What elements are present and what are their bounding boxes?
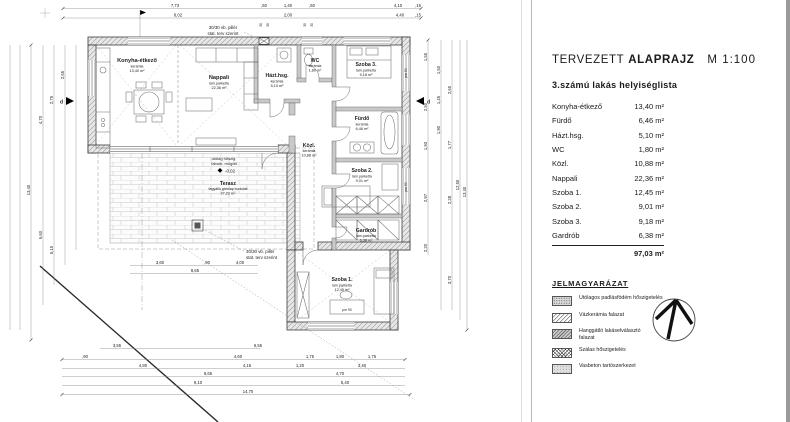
hatch-swatch-icon xyxy=(552,313,572,323)
room-name: Fürdő xyxy=(552,114,572,128)
svg-text:1,50: 1,50 xyxy=(436,65,441,74)
svg-text:30/30 vb. pillér: 30/30 vb. pillér xyxy=(209,25,238,30)
svg-text:,15: ,15 xyxy=(415,13,421,18)
svg-text:2,00: 2,00 xyxy=(284,13,293,18)
svg-text:lam.parketta: lam.parketta xyxy=(356,69,376,73)
svg-text:kerámia: kerámia xyxy=(131,65,144,69)
table-row: Nappali22,36 m² xyxy=(552,172,664,186)
svg-text:1,90: 1,90 xyxy=(436,125,441,134)
svg-text:kerámia: kerámia xyxy=(271,80,284,84)
hatch-swatch-icon xyxy=(552,296,572,306)
svg-text:3,70: 3,70 xyxy=(447,275,452,284)
legend-item: Vasbeton tartószerkezet xyxy=(552,363,682,374)
room-label-szoba3: Szoba 3. lam.parketta 9,18 m² xyxy=(355,62,377,77)
svg-text:30: 30 xyxy=(303,23,307,27)
svg-text:8,02: 8,02 xyxy=(174,13,183,18)
room-name: WC xyxy=(552,143,565,157)
svg-text:Fürdő: Fürdő xyxy=(355,116,370,122)
svg-text:9,10: 9,10 xyxy=(194,380,203,385)
svg-text:4,70: 4,70 xyxy=(38,115,43,124)
table-row: Szoba 1.12,45 m² xyxy=(552,186,664,200)
svg-text:6,55: 6,55 xyxy=(254,343,263,348)
hatch-swatch-icon xyxy=(552,348,572,358)
svg-text:30: 30 xyxy=(259,23,263,27)
svg-text:,60: ,60 xyxy=(309,3,315,8)
svg-text:2,75: 2,75 xyxy=(49,95,54,104)
svg-text:,90: ,90 xyxy=(204,260,210,265)
svg-text:1,80: 1,80 xyxy=(336,354,345,359)
sheet-frame-line xyxy=(521,0,522,422)
svg-text:6,60: 6,60 xyxy=(38,230,43,239)
legend-label: Hanggátló lakáselválasztó falazat xyxy=(579,328,641,341)
svg-text:30: 30 xyxy=(266,23,270,27)
svg-text:27,22 m²: 27,22 m² xyxy=(221,192,237,196)
legend-label: Vasbeton tartószerkezet xyxy=(579,363,636,370)
room-area: 1,80 m² xyxy=(639,143,664,157)
room-area: 6,38 m² xyxy=(639,229,664,243)
svg-text:stat. terv szerint: stat. terv szerint xyxy=(208,31,240,36)
title-main: ALAPRAJZ xyxy=(628,54,694,66)
room-label-gardrob: Gardrób lam.parketta 6,38 m² xyxy=(356,228,376,243)
table-row: WC1,80 m² xyxy=(552,143,664,157)
svg-text:kerámia: kerámia xyxy=(309,64,322,68)
svg-text:13,40: 13,40 xyxy=(26,184,31,195)
title-prefix: TERVEZETT xyxy=(552,54,624,66)
survey-cross xyxy=(40,8,50,18)
room-name: Konyha-étkező xyxy=(552,100,602,114)
sheet-edge xyxy=(786,0,790,422)
svg-text:1,80 m²: 1,80 m² xyxy=(309,69,323,73)
svg-text:2,65: 2,65 xyxy=(60,70,65,79)
svg-text:12,50: 12,50 xyxy=(455,179,460,190)
svg-text:kerámia: kerámia xyxy=(303,149,316,153)
table-row: Gardrób6,38 m² xyxy=(552,229,664,243)
room-label-nappali: Nappali lam.parketta 22,36 m² xyxy=(209,75,230,90)
section-marker-left: d xyxy=(60,97,74,106)
room-label-kozl: Közl. kerámia 10,88 m² xyxy=(302,143,318,158)
room-label-furdo: Fürdő kerámia 6,46 m² xyxy=(355,116,370,131)
svg-text:lam.parketta: lam.parketta xyxy=(352,175,372,179)
terrace-paving xyxy=(110,153,300,243)
title-scale: M 1:100 xyxy=(707,54,756,66)
svg-text:5,10 m²: 5,10 m² xyxy=(271,84,285,88)
info-panel: TERVEZETTALAPRAJZM 1:100 3.számú lakás h… xyxy=(532,0,786,422)
table-row: Szoba 2.9,01 m² xyxy=(552,200,664,214)
svg-text:6,46 m²: 6,46 m² xyxy=(356,127,370,131)
legend-label: Vázkerámia falazat xyxy=(579,312,624,319)
svg-text:9,01 m²: 9,01 m² xyxy=(356,179,370,183)
legend-label: Szálas hőszigetelés xyxy=(579,347,626,354)
svg-text:,15: ,15 xyxy=(415,3,421,8)
room-area: 5,10 m² xyxy=(639,129,664,143)
table-row: Szoba 3.9,18 m² xyxy=(552,215,664,229)
room-area: 9,01 m² xyxy=(639,200,664,214)
svg-text:14,70: 14,70 xyxy=(243,389,254,394)
svg-text:6,38 m²: 6,38 m² xyxy=(360,239,374,243)
flag-marker xyxy=(140,10,146,15)
svg-text:3,40: 3,40 xyxy=(358,363,367,368)
room-label-wc: WC kerámia 1,80 m² xyxy=(309,58,323,73)
svg-text:Szoba 3.: Szoba 3. xyxy=(355,62,377,68)
total-area: 97,03 m² xyxy=(552,245,664,258)
svg-text:,60: ,60 xyxy=(261,3,267,8)
svg-text:Szoba 2.: Szoba 2. xyxy=(351,168,373,174)
table-row: Közl.10,88 m² xyxy=(552,157,664,171)
room-name: Szoba 2. xyxy=(552,200,582,214)
svg-text:4,80: 4,80 xyxy=(139,363,148,368)
svg-text:13,40: 13,40 xyxy=(462,186,467,197)
svg-text:2,97: 2,97 xyxy=(423,193,428,202)
svg-text:1,75: 1,75 xyxy=(368,354,377,359)
svg-text:lam.parketta: lam.parketta xyxy=(209,82,229,86)
svg-text:1,77: 1,77 xyxy=(447,140,452,149)
svg-text:5,15: 5,15 xyxy=(49,245,54,254)
svg-text:4,60: 4,60 xyxy=(234,354,243,359)
legend-title: JELMAGYARÁZAT xyxy=(552,279,682,288)
room-area: 12,45 m² xyxy=(634,186,664,200)
svg-text:1,75: 1,75 xyxy=(306,354,315,359)
floor-plan-sheet: d d Konyha-étkező kerámia 13,40 m² Nappa… xyxy=(0,0,790,422)
room-name: Szoba 3. xyxy=(552,215,582,229)
svg-text:7,73: 7,73 xyxy=(171,3,180,8)
svg-text:1,55: 1,55 xyxy=(423,52,428,61)
floor-plan-drawing: d d Konyha-étkező kerámia 13,40 m² Nappa… xyxy=(0,0,532,422)
svg-text:lam.parketta: lam.parketta xyxy=(356,234,376,238)
room-label-konyha: Konyha-étkező kerámia 13,40 m² xyxy=(117,58,157,73)
svg-text:Nappali: Nappali xyxy=(209,75,230,81)
room-label-hazthsg: Házt.hsg. kerámia 5,10 m² xyxy=(265,73,289,88)
room-list-title: 3.számú lakás helyiséglista xyxy=(552,80,677,90)
room-label-szoba1: Szoba 1. lam.parketta 12,45 m² xyxy=(331,277,353,292)
svg-text:2,50: 2,50 xyxy=(423,102,428,111)
level-value: -0,02 xyxy=(225,168,236,173)
svg-text:lam.parketta: lam.parketta xyxy=(332,284,352,288)
room-area: 10,88 m² xyxy=(634,157,664,171)
svg-text:4,00: 4,00 xyxy=(236,260,245,265)
table-row: Konyha-étkező13,40 m² xyxy=(552,100,664,114)
svg-text:faburk. mögött: faburk. mögött xyxy=(211,161,237,166)
svg-text:8,65: 8,65 xyxy=(191,268,200,273)
svg-text:Konyha-étkező: Konyha-étkező xyxy=(117,58,157,64)
svg-text:8,65: 8,65 xyxy=(204,371,213,376)
svg-text:12,45 m²: 12,45 m² xyxy=(335,288,351,292)
svg-text:5,40: 5,40 xyxy=(341,380,350,385)
room-area: 9,18 m² xyxy=(639,215,664,229)
svg-text:,90: ,90 xyxy=(82,354,88,359)
svg-text:1,45: 1,45 xyxy=(436,95,441,104)
room-name: Nappali xyxy=(552,172,577,186)
hatch-swatch-icon xyxy=(552,364,572,374)
svg-text:4,10: 4,10 xyxy=(394,3,403,8)
sill-height-label: pm 90 xyxy=(342,308,352,312)
section-label: d xyxy=(60,100,63,106)
legend-item: Szálas hőszigetelés xyxy=(552,347,682,358)
svg-text:4,70: 4,70 xyxy=(336,371,345,376)
svg-text:3,60: 3,60 xyxy=(156,260,165,265)
svg-text:30/30 vb. pillér: 30/30 vb. pillér xyxy=(246,249,275,254)
room-name: Közl. xyxy=(552,157,569,171)
room-name: Szoba 1. xyxy=(552,186,582,200)
svg-text:9,18 m²: 9,18 m² xyxy=(360,73,374,77)
room-area: 22,36 m² xyxy=(634,172,664,186)
svg-text:kerámia: kerámia xyxy=(356,123,369,127)
room-area: 6,46 m² xyxy=(639,114,664,128)
svg-text:3,55: 3,55 xyxy=(113,343,122,348)
svg-text:4,15: 4,15 xyxy=(243,363,252,368)
table-row: Fürdő6,46 m² xyxy=(552,114,664,128)
sill-height-label: pm 90 xyxy=(404,182,408,192)
svg-text:13,40 m²: 13,40 m² xyxy=(130,69,146,73)
room-area: 13,40 m² xyxy=(634,100,664,114)
svg-text:30: 30 xyxy=(310,23,314,27)
room-list-table: Konyha-étkező13,40 m² Fürdő6,46 m² Házt.… xyxy=(552,100,664,258)
drawing-title: TERVEZETTALAPRAJZM 1:100 xyxy=(552,54,756,66)
svg-text:1,20: 1,20 xyxy=(296,363,305,368)
svg-text:2,65: 2,65 xyxy=(447,85,452,94)
north-arrow-icon xyxy=(651,297,697,343)
sill-height-label: pm 90 xyxy=(404,68,408,78)
svg-text:stat. terv szerint: stat. terv szerint xyxy=(246,255,278,260)
svg-text:1,40: 1,40 xyxy=(284,3,293,8)
svg-text:fagyálló greslap burkolat: fagyálló greslap burkolat xyxy=(209,187,248,191)
svg-text:1,93: 1,93 xyxy=(423,141,428,150)
hatch-swatch-icon xyxy=(552,329,572,339)
svg-text:2,28: 2,28 xyxy=(447,195,452,204)
room-name: Gardrób xyxy=(552,229,580,243)
room-name: Házt.hsg. xyxy=(552,129,584,143)
svg-text:2,20: 2,20 xyxy=(423,243,428,252)
svg-text:10,88 m²: 10,88 m² xyxy=(302,154,318,158)
svg-text:Szoba 1.: Szoba 1. xyxy=(331,277,353,283)
svg-text:Házt.hsg.: Házt.hsg. xyxy=(265,73,289,79)
table-row: Házt.hsg.5,10 m² xyxy=(552,129,664,143)
svg-text:22,36 m²: 22,36 m² xyxy=(212,86,228,90)
room-label-szoba2: Szoba 2. lam.parketta 9,01 m² xyxy=(351,168,373,183)
svg-text:4,40: 4,40 xyxy=(396,13,405,18)
